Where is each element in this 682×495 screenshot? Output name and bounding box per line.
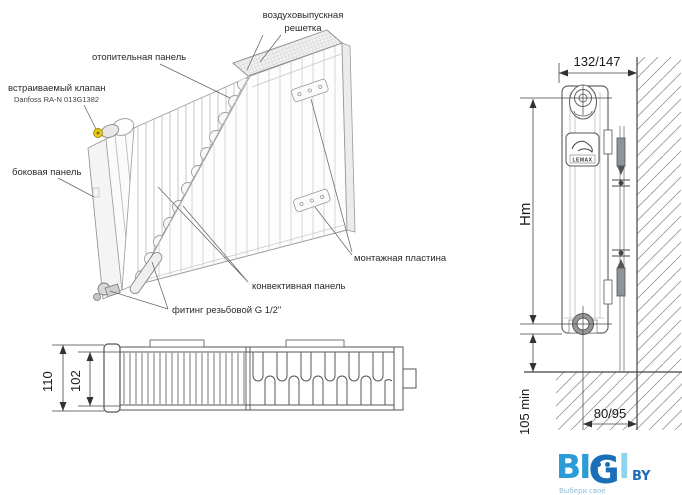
brand-badge: LEMAX <box>566 133 599 166</box>
dim-wall-offset: 80/95 <box>594 406 627 421</box>
label-threaded-fitting: фитинг резьбовой G 1/2" <box>172 305 281 316</box>
radiator-3d-body <box>88 30 355 301</box>
section-body <box>104 340 416 412</box>
bigl-logo: BI G l BY Выбери своё <box>556 447 682 489</box>
dim-height: Hm <box>517 203 534 226</box>
dim-panel-depth: 102 <box>68 370 83 392</box>
cross-section-view: 110 102 <box>40 340 416 412</box>
wall-hatch <box>637 57 681 372</box>
floor-hatch <box>556 372 682 430</box>
dim-top-width: 132/147 <box>574 54 621 69</box>
brand-badge-text: LEMAX <box>573 158 593 164</box>
logo-tagline: Выбери своё <box>559 487 682 495</box>
logo-smiley-g-icon: G <box>588 455 619 486</box>
radiator-technical-drawing: воздуховыпускная решетка отопительная па… <box>0 0 682 490</box>
logo-text-bi: BI <box>556 447 589 486</box>
label-mounting-plate: монтажная пластина <box>354 253 447 264</box>
logo-suffix-by: BY <box>632 469 651 484</box>
dim-overall-depth: 110 <box>40 371 55 392</box>
label-air-grille-line1: воздуховыпускная <box>263 10 344 21</box>
logo-letter-l: l <box>619 447 630 486</box>
label-air-grille-line2: решетка <box>284 23 322 34</box>
logo-letter-g: G <box>588 448 619 492</box>
side-installation-view: LEMAX <box>517 54 682 435</box>
label-heating-panel: отопительная панель <box>92 52 186 63</box>
label-side-panel: боковая панель <box>12 167 81 178</box>
dim-floor-clearance: 105 min <box>517 389 532 435</box>
label-convective-panel: конвективная панель <box>252 281 345 292</box>
main-3d-view: воздуховыпускная решетка отопительная па… <box>8 10 447 316</box>
label-valve-model: Danfoss RA-N 013G1382 <box>14 95 99 104</box>
logo-row: BI G l BY <box>556 447 682 486</box>
label-built-in-valve: встраиваемый клапан <box>8 83 106 94</box>
radiator-profile <box>562 86 608 333</box>
